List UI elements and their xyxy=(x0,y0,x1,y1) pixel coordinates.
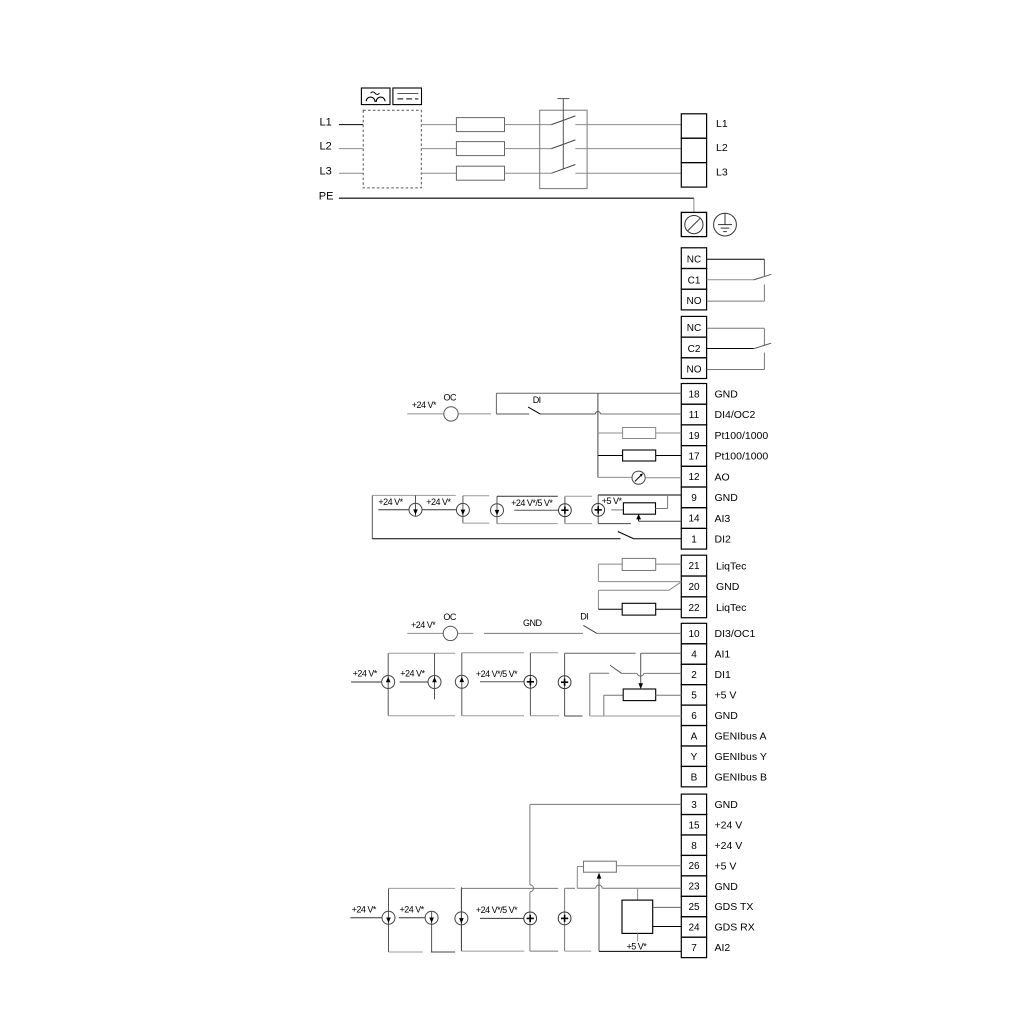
svg-text:GND: GND xyxy=(716,581,740,593)
svg-text:GDS TX: GDS TX xyxy=(715,901,754,913)
svg-text:26: 26 xyxy=(688,861,700,872)
svg-text:+24 V*/5 V*: +24 V*/5 V* xyxy=(511,498,553,508)
svg-text:19: 19 xyxy=(688,431,700,442)
svg-text:GDS RX: GDS RX xyxy=(715,922,755,934)
svg-text:B: B xyxy=(691,772,698,783)
svg-text:OC: OC xyxy=(443,612,457,622)
svg-text:15: 15 xyxy=(688,820,700,831)
svg-text:GND: GND xyxy=(715,710,739,722)
svg-text:1: 1 xyxy=(691,534,697,545)
svg-text:+24 V*: +24 V* xyxy=(412,400,437,410)
svg-text:GENIbus Y: GENIbus Y xyxy=(715,751,767,763)
svg-text:22: 22 xyxy=(688,603,700,614)
svg-text:4: 4 xyxy=(691,650,697,661)
svg-text:2: 2 xyxy=(691,670,697,681)
svg-text:DI4/OC2: DI4/OC2 xyxy=(715,409,756,421)
svg-text:24: 24 xyxy=(688,923,700,934)
svg-text:L1: L1 xyxy=(716,118,728,130)
svg-text:AI1: AI1 xyxy=(715,649,731,661)
svg-text:+24 V*: +24 V* xyxy=(353,669,378,679)
svg-text:C1: C1 xyxy=(688,275,701,286)
svg-text:GND: GND xyxy=(715,881,739,893)
svg-text:NO: NO xyxy=(687,296,702,307)
svg-text:11: 11 xyxy=(689,410,700,421)
svg-text:+24 V: +24 V xyxy=(715,820,743,832)
svg-text:+24 V: +24 V xyxy=(715,840,743,852)
svg-text:GENIbus A: GENIbus A xyxy=(715,731,767,743)
svg-text:GENIbus B: GENIbus B xyxy=(715,771,768,783)
svg-text:NC: NC xyxy=(687,323,701,334)
svg-text:+24 V*: +24 V* xyxy=(400,669,425,679)
svg-text:+24 V*: +24 V* xyxy=(411,620,436,630)
svg-text:GND: GND xyxy=(715,799,739,811)
svg-text:AI3: AI3 xyxy=(715,513,731,525)
svg-text:Pt100/1000: Pt100/1000 xyxy=(715,430,769,442)
svg-text:L1: L1 xyxy=(320,117,332,129)
svg-text:25: 25 xyxy=(688,902,700,913)
svg-text:7: 7 xyxy=(691,943,697,954)
svg-text:L3: L3 xyxy=(320,165,332,177)
svg-text:17: 17 xyxy=(688,452,700,463)
svg-text:+24 V*: +24 V* xyxy=(426,497,451,507)
svg-text:8: 8 xyxy=(691,841,697,852)
svg-text:DI1: DI1 xyxy=(715,669,732,681)
svg-text:AI2: AI2 xyxy=(715,942,731,954)
svg-text:23: 23 xyxy=(688,882,700,893)
svg-text:NO: NO xyxy=(687,365,702,376)
svg-text:6: 6 xyxy=(691,711,697,722)
svg-text:+5 V: +5 V xyxy=(715,690,737,702)
svg-text:OC: OC xyxy=(444,392,458,402)
svg-text:GND: GND xyxy=(715,492,739,504)
svg-text:DI3/OC1: DI3/OC1 xyxy=(715,628,756,640)
svg-text:14: 14 xyxy=(688,514,700,525)
svg-text:+24 V*/5 V*: +24 V*/5 V* xyxy=(476,905,518,915)
svg-text:L3: L3 xyxy=(716,167,728,179)
svg-text:3: 3 xyxy=(691,800,697,811)
svg-text:20: 20 xyxy=(688,582,700,593)
svg-text:DI: DI xyxy=(580,611,588,621)
svg-text:Pt100/1000: Pt100/1000 xyxy=(715,451,769,463)
svg-text:A: A xyxy=(691,731,698,742)
svg-text:LiqTec: LiqTec xyxy=(716,560,746,572)
svg-text:18: 18 xyxy=(688,390,700,401)
svg-text:10: 10 xyxy=(688,629,700,640)
svg-text:C2: C2 xyxy=(688,344,701,355)
svg-text:GND: GND xyxy=(715,389,739,401)
svg-text:12: 12 xyxy=(688,472,700,483)
svg-text:5: 5 xyxy=(691,691,697,702)
svg-text:+5 V*: +5 V* xyxy=(602,496,623,506)
svg-text:LiqTec: LiqTec xyxy=(716,602,746,614)
svg-text:PE: PE xyxy=(319,190,334,202)
svg-text:+24 V*: +24 V* xyxy=(400,904,425,914)
svg-text:9: 9 xyxy=(691,493,697,504)
svg-text:+5 V*: +5 V* xyxy=(627,941,648,951)
svg-text:NC: NC xyxy=(687,255,701,266)
svg-text:+24 V*/5 V*: +24 V*/5 V* xyxy=(476,669,518,679)
svg-text:Y: Y xyxy=(691,752,698,763)
svg-text:L2: L2 xyxy=(716,142,728,154)
svg-text:+5 V: +5 V xyxy=(715,860,737,872)
svg-text:L2: L2 xyxy=(320,141,332,153)
svg-text:21: 21 xyxy=(688,561,700,572)
svg-text:DI2: DI2 xyxy=(715,534,732,546)
svg-text:+24 V*: +24 V* xyxy=(378,497,403,507)
svg-text:+24 V*: +24 V* xyxy=(352,904,377,914)
svg-text:AO: AO xyxy=(715,471,730,483)
svg-text:GND: GND xyxy=(523,618,543,628)
svg-text:DI: DI xyxy=(533,395,541,405)
